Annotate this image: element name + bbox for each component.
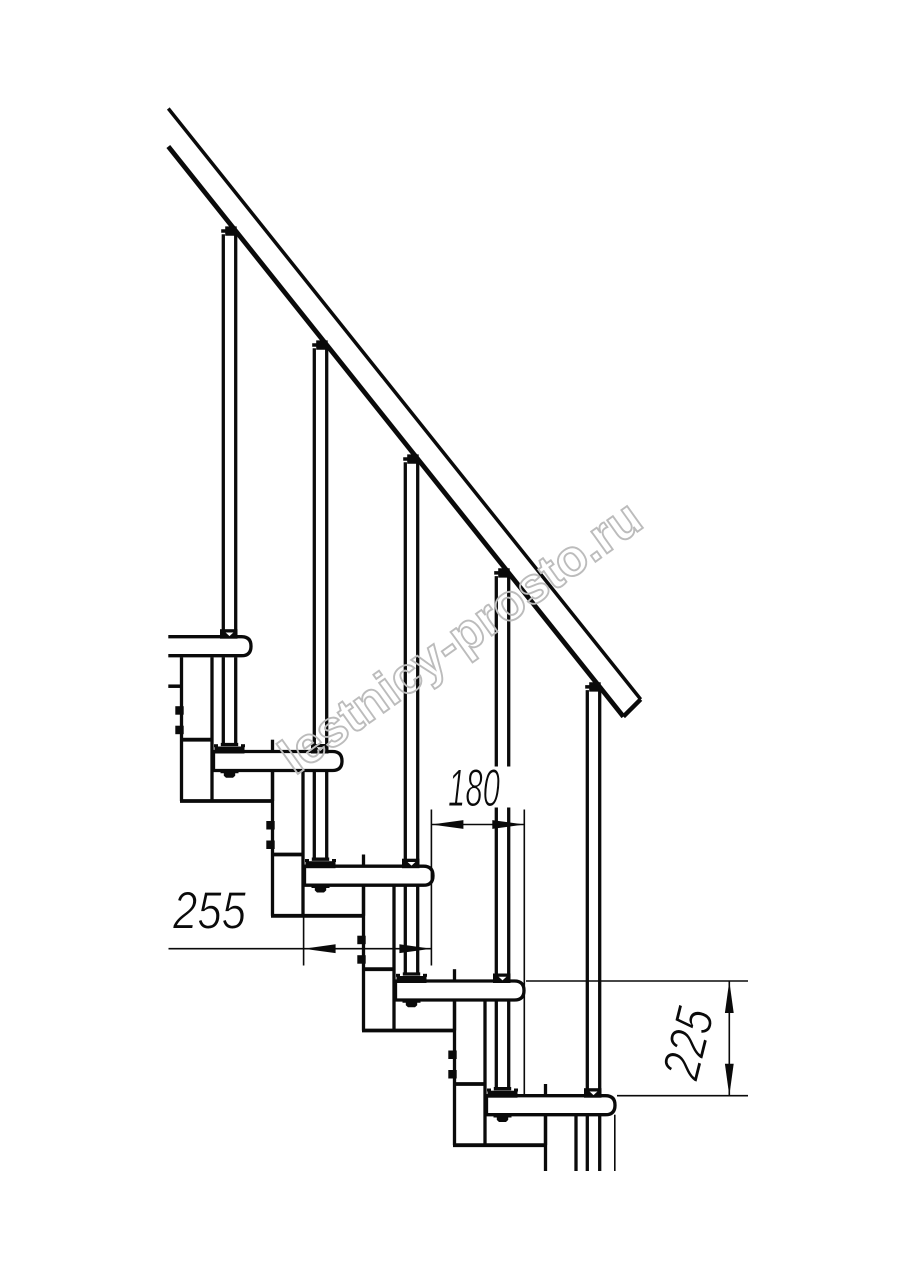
svg-text:255: 255 xyxy=(172,882,246,941)
svg-text:180: 180 xyxy=(448,759,500,818)
